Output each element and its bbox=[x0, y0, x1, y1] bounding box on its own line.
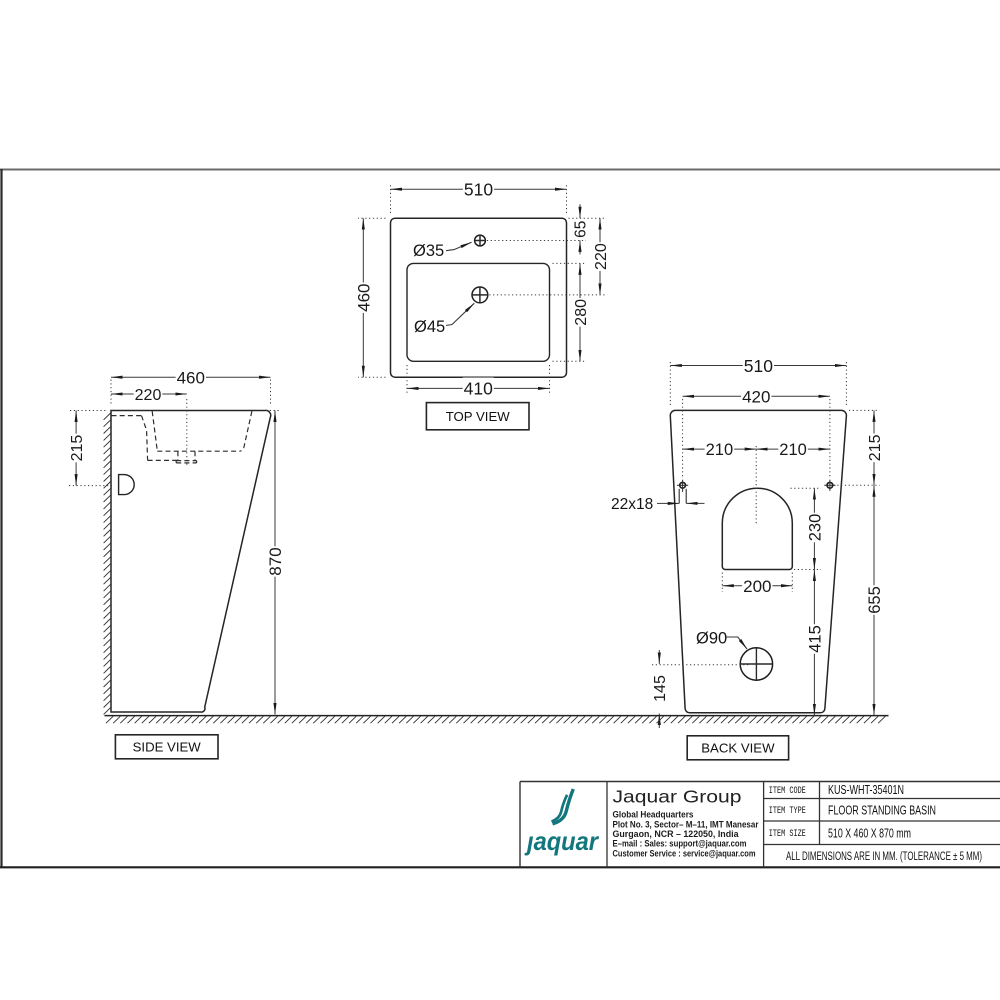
svg-text:Jaquar Group: Jaquar Group bbox=[613, 787, 742, 807]
svg-text:ITEM SIZE: ITEM SIZE bbox=[769, 828, 806, 840]
svg-text:420: 420 bbox=[742, 387, 770, 406]
svg-text:Ø90: Ø90 bbox=[696, 630, 727, 648]
svg-text:655: 655 bbox=[866, 586, 884, 614]
svg-text:220: 220 bbox=[135, 387, 162, 404]
svg-text:145: 145 bbox=[652, 675, 669, 702]
svg-text:210: 210 bbox=[779, 441, 807, 459]
svg-text:460: 460 bbox=[354, 284, 373, 312]
svg-text:230: 230 bbox=[806, 514, 824, 542]
svg-text:Ø35: Ø35 bbox=[413, 242, 444, 260]
svg-text:210: 210 bbox=[706, 441, 734, 459]
svg-text:410: 410 bbox=[464, 379, 493, 399]
svg-text:Global Headquarters: Global Headquarters bbox=[613, 809, 694, 819]
svg-text:510: 510 bbox=[744, 356, 773, 376]
svg-text:215: 215 bbox=[69, 435, 86, 462]
svg-text:220: 220 bbox=[593, 243, 610, 270]
svg-text:ITEM TYPE: ITEM TYPE bbox=[769, 805, 806, 817]
svg-text:870: 870 bbox=[266, 547, 285, 575]
svg-text:E–mail : Sales: support@jaquar: E–mail : Sales: support@jaquar.com bbox=[613, 839, 747, 849]
svg-text:ȷaquar: ȷaquar bbox=[524, 826, 599, 856]
svg-text:Ø45: Ø45 bbox=[414, 318, 445, 336]
svg-text:ALL DIMENSIONS ARE IN MM. (TOL: ALL DIMENSIONS ARE IN MM. (TOLERANCE ± 5… bbox=[786, 851, 982, 863]
svg-text:200: 200 bbox=[743, 577, 771, 596]
svg-text:SIDE VIEW: SIDE VIEW bbox=[133, 740, 202, 755]
svg-text:510 X 460 X 870 mm: 510 X 460 X 870 mm bbox=[828, 827, 911, 841]
svg-text:BACK VIEW: BACK VIEW bbox=[701, 741, 775, 756]
svg-text:KUS-WHT-35401N: KUS-WHT-35401N bbox=[828, 783, 904, 797]
svg-text:215: 215 bbox=[867, 434, 884, 461]
svg-text:Gurgaon, NCR – 122050, India: Gurgaon, NCR – 122050, India bbox=[613, 829, 739, 839]
svg-text:65: 65 bbox=[573, 221, 590, 238]
svg-text:22x18: 22x18 bbox=[611, 496, 653, 513]
svg-text:Customer Service : service@jaq: Customer Service : service@jaquar.com bbox=[613, 848, 756, 858]
svg-text:280: 280 bbox=[573, 299, 590, 326]
svg-text:ITEM CODE: ITEM CODE bbox=[769, 785, 806, 797]
svg-text:510: 510 bbox=[464, 180, 493, 200]
svg-text:Plot No. 3, Sector– M–11, IMT: Plot No. 3, Sector– M–11, IMT Manesar bbox=[613, 819, 760, 829]
svg-text:TOP VIEW: TOP VIEW bbox=[446, 409, 511, 424]
svg-text:FLOOR STANDING BASIN: FLOOR STANDING BASIN bbox=[828, 804, 936, 818]
svg-text:460: 460 bbox=[177, 368, 205, 387]
svg-text:415: 415 bbox=[806, 625, 824, 653]
